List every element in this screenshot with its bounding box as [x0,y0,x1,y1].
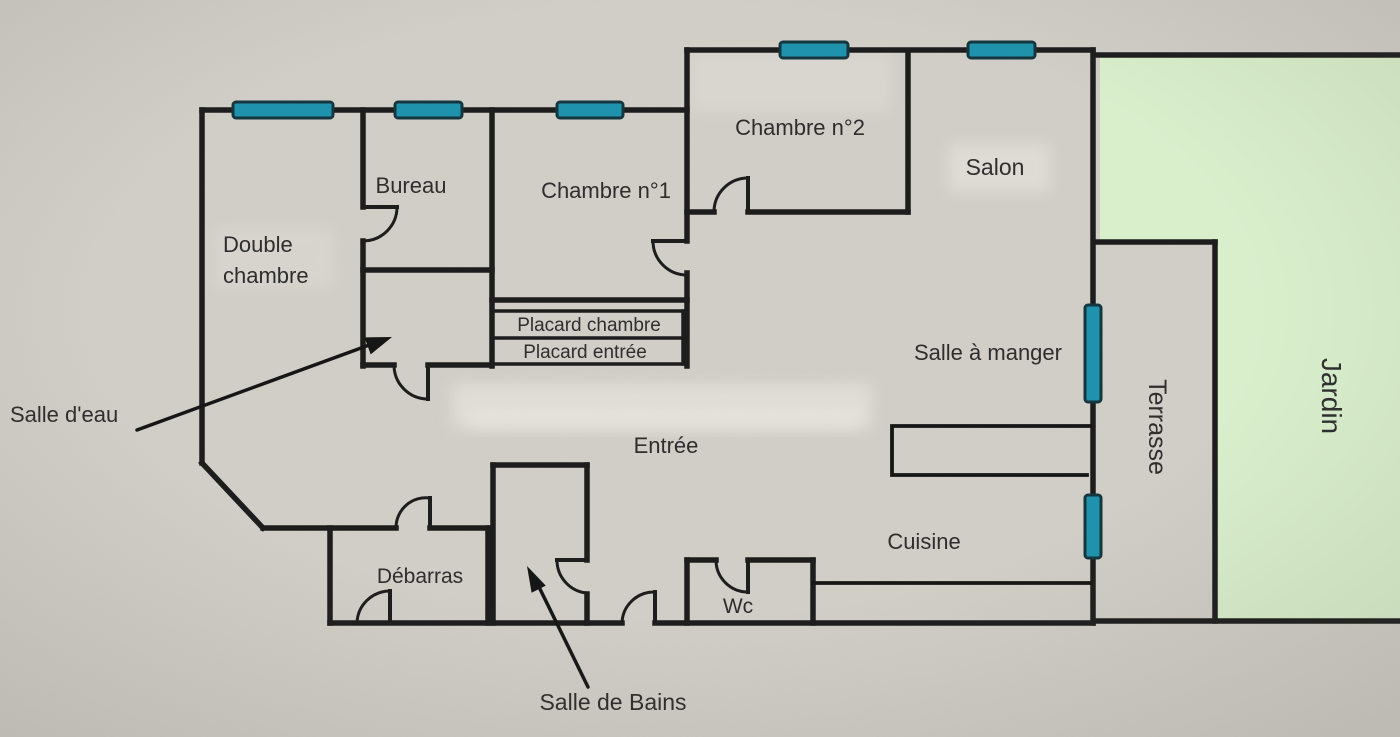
window-salle-a-manger [1085,305,1101,402]
label-jardin: Jardin [1316,358,1347,434]
label-salon: Salon [966,154,1025,180]
label-chambre1: Chambre n°1 [541,178,671,203]
label-double-chambre-line1: Double [223,232,293,257]
floor-plan-photo: Double chambre Bureau Chambre n°1 Chambr… [0,0,1400,737]
label-wc: Wc [723,595,753,618]
label-salle-de-bains: Salle de Bains [539,689,686,715]
window-cuisine [1085,495,1101,558]
label-placard-chambre: Placard chambre [517,315,661,336]
label-chambre2: Chambre n°2 [735,115,865,140]
window-chambre1 [557,102,623,118]
label-salle-a-manger: Salle à manger [914,340,1062,365]
label-terrasse: Terrasse [1143,379,1171,475]
window-chambre2 [780,42,848,58]
label-cuisine: Cuisine [887,529,960,554]
window-bureau [395,102,462,118]
window-salon [968,42,1035,58]
label-salle-deau: Salle d'eau [10,402,118,427]
label-placard-entree: Placard entrée [523,342,647,363]
label-entree: Entrée [634,433,699,458]
label-debarras: Débarras [377,565,463,588]
label-double-chambre-line2: chambre [223,263,309,288]
floor-plan-svg: Double chambre Bureau Chambre n°1 Chambr… [0,0,1400,737]
label-bureau: Bureau [376,173,447,198]
window-double-chambre [233,102,333,118]
